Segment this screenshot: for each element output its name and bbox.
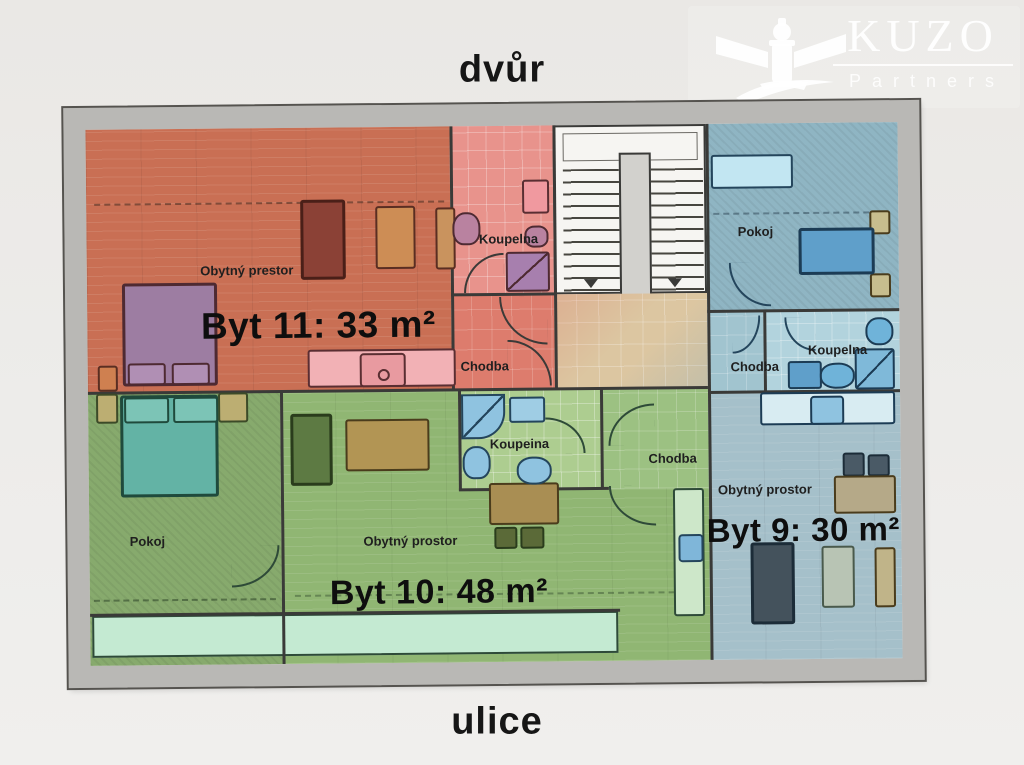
toilet: [865, 317, 893, 345]
dining-table: [489, 482, 559, 525]
shower: [506, 251, 550, 291]
dining-table: [834, 475, 896, 514]
bed-pillow: [172, 363, 210, 385]
kitchen-counter: [308, 348, 456, 387]
floor-plan: Obytný prestor Byt 11: 33 m² Koupelna Ch…: [63, 100, 925, 688]
lighthouse-icon: [716, 10, 846, 106]
sideboard: [874, 547, 896, 607]
bed-pillow: [173, 397, 218, 423]
nightstand: [98, 366, 118, 392]
armchair: [435, 207, 456, 269]
byt11-living-label: Obytný prestor: [200, 262, 293, 278]
nightstand: [218, 392, 248, 422]
stairwell: [552, 124, 707, 294]
byt10-living-label: Obytný prostor: [363, 533, 457, 549]
byt10-room-label: Pokoj: [130, 534, 166, 549]
stool: [843, 452, 865, 476]
sofa: [290, 414, 333, 486]
street-label: ulice: [451, 701, 543, 744]
stair-core-wall: [619, 152, 652, 296]
washing-machine: [788, 361, 822, 389]
bed: [798, 227, 874, 275]
stair-flight-right: [647, 168, 704, 293]
wardrobe: [711, 154, 793, 189]
byt11-hall-label: Chodba: [460, 358, 509, 373]
stool: [494, 527, 517, 549]
sofa: [300, 199, 346, 279]
byt10-area-label: Byt 10: 48 m²: [330, 572, 549, 613]
byt10-bathroom-label: Koupeina: [490, 436, 549, 452]
kitchen-counter: [760, 391, 895, 425]
kuzo-partners-logo: KUZO Partners: [688, 6, 1020, 108]
logo-brand-text: KUZO: [828, 8, 1018, 64]
byt9-area-label: Byt 9: 30 m²: [707, 510, 900, 550]
nightstand: [870, 273, 891, 297]
stool: [868, 454, 890, 476]
coffee-table: [375, 206, 416, 269]
coffee-table: [345, 419, 429, 472]
byt11-area-label: Byt 11: 33 m²: [201, 304, 436, 348]
kitchen-sink: [810, 396, 844, 425]
byt10-hall-label: Chodba: [648, 451, 697, 466]
kitchen-sink: [678, 534, 703, 562]
byt11-bathroom-label: Koupelna: [479, 231, 538, 247]
bathroom-cabinet: [522, 179, 549, 213]
bathroom-cabinet: [509, 397, 545, 423]
byt9-room-label: Pokoj: [738, 224, 774, 239]
rug: [821, 546, 855, 608]
sink-faucet: [378, 369, 390, 381]
courtyard-label: dvůr: [459, 49, 545, 92]
toilet: [452, 212, 480, 245]
bed-pillow: [124, 397, 169, 423]
stair-flight-left: [563, 169, 620, 294]
nightstand: [96, 394, 118, 424]
byt9-hall-label: Chodba: [730, 359, 779, 374]
sofa: [750, 542, 795, 624]
byt10-balcony: [92, 611, 618, 658]
byt9-living-label: Obytný prostor: [718, 481, 812, 497]
logo-sub-text: Partners: [828, 66, 1018, 96]
stool: [520, 527, 544, 549]
kitchen-counter: [673, 488, 705, 616]
washbasin: [820, 363, 855, 389]
landing-hall: [554, 293, 708, 389]
washbasin: [517, 456, 552, 484]
bed-pillow: [128, 363, 166, 385]
toilet: [463, 446, 491, 479]
stair-direction-arrow: [584, 279, 598, 288]
stair-direction-arrow: [668, 278, 682, 287]
byt9-bathroom-label: Koupelna: [808, 342, 867, 358]
